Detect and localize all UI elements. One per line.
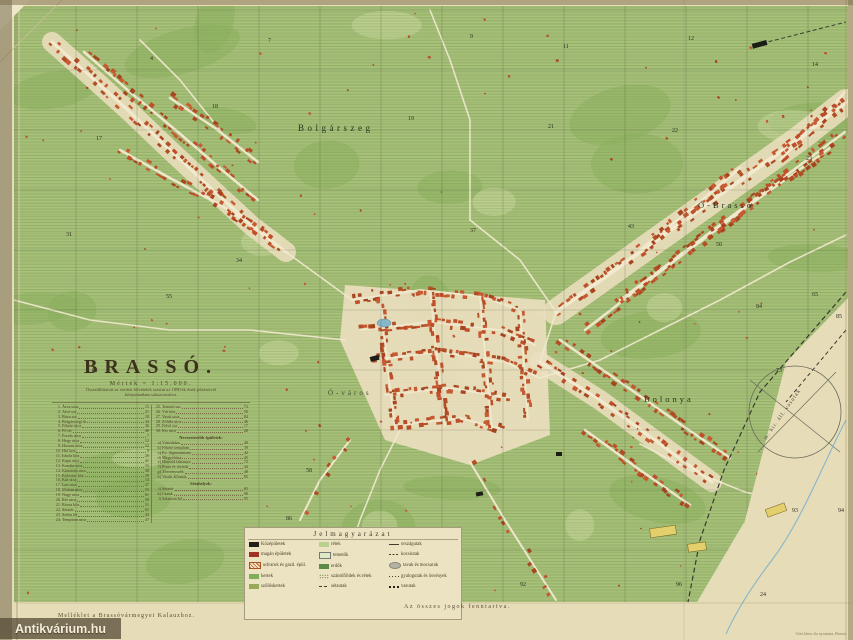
grid-number: 14 xyxy=(812,62,818,68)
legend-item-label: vasutak xyxy=(401,584,416,589)
grid-number: 31 xyxy=(66,232,72,238)
grid-number: 12 xyxy=(688,36,694,42)
grid-number: 94 xyxy=(838,508,844,514)
legend-column: országutakkocsiutaktavak és mocsarakgyal… xyxy=(388,542,458,594)
grid-number: 85 xyxy=(836,314,842,320)
legend-item-label: sétautak xyxy=(331,584,347,589)
legend-item: vasutak xyxy=(389,584,457,589)
legend-item: gyalogutak és ösvények xyxy=(389,574,457,579)
olive-swatch-icon xyxy=(249,584,259,589)
legend-item: Középületek xyxy=(249,542,317,547)
dash2-swatch-icon xyxy=(389,552,399,557)
dash3-swatch-icon xyxy=(389,574,399,579)
legend-item-label: temetők xyxy=(333,553,348,558)
red-swatch-icon xyxy=(249,552,259,557)
legend-item: kertek xyxy=(249,574,317,579)
legend-item-label: udvarok és gazd. épül. xyxy=(263,563,306,568)
watermark-text: Antikvárium.hu xyxy=(15,622,106,636)
grid-number: 55 xyxy=(166,294,172,300)
grid-number: 96 xyxy=(676,582,682,588)
grid-number: 19 xyxy=(408,116,414,122)
legend-item: rétek xyxy=(319,542,387,547)
legend-column: rétektemetőkerdőkszántóföldek és réteksé… xyxy=(318,542,388,594)
legend-item-label: szántóföldek és rétek xyxy=(331,574,372,579)
grid-number: 34 xyxy=(236,258,242,264)
grid-number: 50 xyxy=(716,242,722,248)
lightgreen-swatch-icon xyxy=(319,542,329,547)
map-subtitle-line2: kőnyomatban sokszorosítva. xyxy=(52,392,250,397)
street-index-left-column: 1.Árva utca152.Alsó sor213.Búza sor184.B… xyxy=(52,405,151,523)
grid-number: 21 xyxy=(548,124,554,130)
pond xyxy=(377,319,391,327)
legend-columns: Középületekmagán épületekudvarok és gazd… xyxy=(248,542,458,594)
darkgreen-swatch-icon xyxy=(319,564,329,569)
legend-item-label: kocsiutak xyxy=(401,552,419,557)
grid-number: 37 xyxy=(470,228,476,234)
legend-item-label: szőlőskertek xyxy=(261,584,285,589)
grid-number: 11 xyxy=(563,44,569,50)
legend-item-label: rétek xyxy=(331,542,341,547)
rights-caption: Az összes jogok fenntartva. xyxy=(404,604,511,610)
index-row: 24.Templom utca37 xyxy=(54,518,149,523)
grid-number: 43 xyxy=(628,224,634,230)
title-panel: BRASSÓ. Mérték = 1:15.000. Összeállíttat… xyxy=(52,356,250,548)
legend-item-label: erdők xyxy=(331,564,342,569)
street-index-right-column: 25.Temető sor7326.Vár köz5027.Vasút utca… xyxy=(151,405,250,523)
green-swatch-icon xyxy=(249,574,259,579)
district-label-ovaros: Ó-város xyxy=(328,389,372,397)
legend-item-label: tavak és mocsarak xyxy=(403,563,438,568)
legend-item: temetők xyxy=(319,552,387,559)
street-index: 1.Árva utca152.Alsó sor213.Búza sor184.B… xyxy=(52,402,250,523)
legend-item: magán épületek xyxy=(249,552,317,557)
legend-item-label: gyalogutak és ösvények xyxy=(401,574,447,579)
hatch-swatch-icon xyxy=(249,562,261,569)
legend-column: Középületekmagán épületekudvarok és gazd… xyxy=(248,542,318,594)
black-swatch-icon xyxy=(249,542,259,547)
legend-item: kocsiutak xyxy=(389,552,457,557)
dots-swatch-icon xyxy=(319,574,329,579)
map-title: BRASSÓ. xyxy=(52,356,250,379)
grid-number: 9 xyxy=(470,34,473,40)
dash-swatch-icon xyxy=(319,584,329,589)
legend-item: országutak xyxy=(389,542,457,547)
grid-number: 23 xyxy=(806,156,812,162)
grid-number: 24 xyxy=(760,592,766,598)
grid-number: 7 xyxy=(268,38,271,44)
watermark-banner: Antikvárium.hu xyxy=(0,618,121,639)
index-row: l)Salamon-kő95 xyxy=(154,497,248,502)
road-swatch-icon xyxy=(389,542,399,547)
district-label-bolgarszeg: Bolgárszeg xyxy=(298,123,374,133)
grid-number: 73 xyxy=(776,368,782,374)
legend-item-label: Középületek xyxy=(261,542,285,547)
legend-item: sétautak xyxy=(319,584,387,589)
legend-item: udvarok és gazd. épül. xyxy=(249,562,317,569)
index-row: 30.Kis utca28 xyxy=(154,429,248,434)
legend-item: szántóföldek és rétek xyxy=(319,574,387,579)
legend-item: tavak és mocsarak xyxy=(389,562,457,569)
grid-number: 84 xyxy=(756,304,762,310)
grid-number: 17 xyxy=(96,136,102,142)
legend-item-label: magán épületek xyxy=(261,552,291,557)
grid-number: 4 xyxy=(150,56,153,62)
oval-swatch-icon xyxy=(389,562,401,569)
grid-number: 86 xyxy=(286,516,292,522)
grid-number: 65 xyxy=(812,292,818,298)
legend-item: erdők xyxy=(319,564,387,569)
legend-item: szőlőskertek xyxy=(249,584,317,589)
printer-credit: Gött János fia nyomása, Brassó. xyxy=(796,631,847,636)
legend-item-label: kertek xyxy=(261,574,273,579)
cross-swatch-icon xyxy=(319,552,331,559)
grid-number: 92 xyxy=(520,582,526,588)
district-label-bolonya: Bolonya xyxy=(644,394,694,404)
scanned-map-page: m. kir. áll. vasutak Bolgárszeg Ó-Brassó… xyxy=(0,0,853,640)
legend-item-label: országutak xyxy=(401,542,422,547)
grid-number: 93 xyxy=(792,508,798,514)
index-row: h)Vasúti állomás85 xyxy=(154,475,248,480)
grid-number: 18 xyxy=(212,104,218,110)
legend-title: Jelmagyarázat xyxy=(248,530,458,540)
grid-number: 22 xyxy=(672,128,678,134)
grid-number: 58 xyxy=(306,468,312,474)
district-label-obrasso: Ó-Brassó xyxy=(698,200,754,210)
rail-swatch-icon xyxy=(389,584,399,589)
